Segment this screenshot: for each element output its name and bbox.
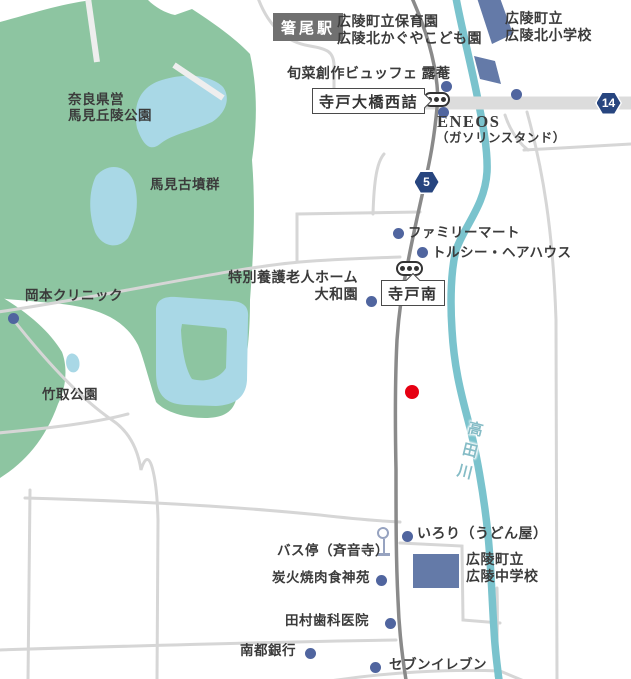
junior-high-label: 広陵町立 広陵中学校	[466, 553, 539, 587]
seven-eleven-label: セブンイレブン	[389, 657, 487, 673]
poi-dot-yakiniku	[376, 575, 387, 586]
irori-label: いろり（うどん屋）	[417, 527, 548, 544]
junior-high-building	[413, 554, 459, 588]
okamoto-clinic-label: 岡本クリニック	[25, 288, 123, 304]
yakiniku-label: 炭火焼肉食神苑	[272, 570, 370, 586]
kofun-label: 馬見古墳群	[150, 177, 220, 193]
poi-dot-yamatoen	[366, 296, 377, 307]
nara-park-label: 奈良県営 馬見丘陵公園	[68, 92, 152, 124]
poi-dot-familymart	[393, 228, 404, 239]
yamatoen-label: 特別養護老人ホーム 大和園	[228, 271, 358, 305]
buffet-roan-label: 旬菜創作ビュッフェ 露菴	[287, 67, 451, 84]
poi-dot-seven	[370, 662, 381, 673]
poi-dot-tamura	[385, 618, 396, 629]
nanto-bank-label: 南都銀行	[240, 643, 296, 659]
terado-ohashi-sign: 寺戸大橋西詰	[312, 88, 425, 114]
kita-elementary-label: 広陵町立 広陵北小学校	[505, 12, 592, 46]
hairhouse-label: トルシー・ヘアハウス	[432, 245, 571, 261]
poi-dot-hairhouse	[417, 247, 428, 258]
destination-marker	[405, 385, 419, 399]
poi-dot-okamoto	[8, 313, 19, 324]
access-map: 箸尾駅 広陵町立保育園 広陵北かぐやこども園 広陵町立 広陵北小学校 旬菜創作ビ…	[0, 0, 631, 679]
poi-dot-nanto	[305, 648, 316, 659]
poi-dot-kodomoen	[511, 89, 522, 100]
familymart-label: ファミリーマート	[408, 225, 520, 241]
hoikuen-label: 広陵町立保育園 広陵北かぐやこども園	[337, 15, 482, 49]
station-hashio-label: 箸尾駅	[273, 13, 343, 41]
hoikuen-building	[474, 56, 501, 84]
terado-minami-sign: 寺戸南	[381, 280, 445, 306]
bus-stop-label: バス停（斉音寺）	[277, 543, 389, 559]
eneos-sub-label: （ガソリンスタンド）	[436, 131, 566, 146]
eneos-label: ENEOS	[437, 112, 500, 132]
poi-dot-irori	[402, 531, 413, 542]
taketori-park-label: 竹取公園	[42, 387, 98, 403]
tamura-dental-label: 田村歯科医院	[285, 613, 369, 629]
park-areas	[0, 0, 256, 478]
traffic-light-icon	[396, 261, 423, 276]
